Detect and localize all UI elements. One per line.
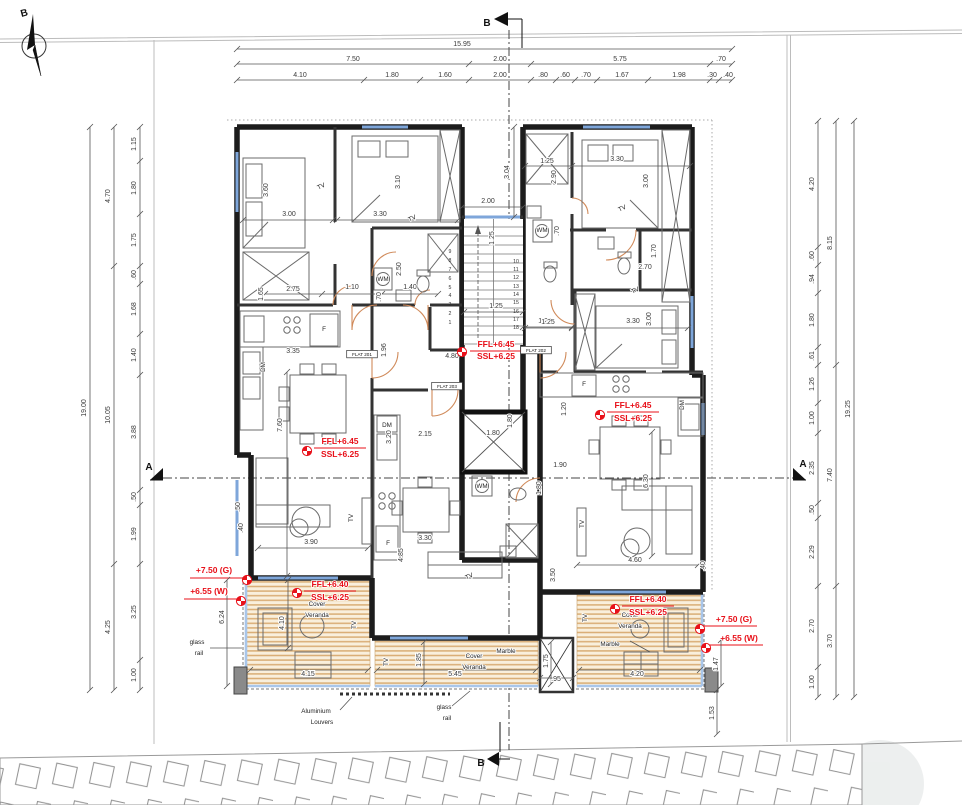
dimension-label: 1.98	[672, 72, 686, 79]
dimension-label: .70	[716, 56, 726, 63]
dimension-label: 2.29	[809, 545, 816, 559]
dimension-label: 5.45	[448, 671, 462, 678]
section-letter: B	[483, 18, 490, 29]
plan-label: Veranda	[305, 612, 329, 619]
dimension-label: 7.50	[346, 56, 360, 63]
level-annotation: FFL+6.45	[477, 339, 514, 349]
plan-label: TV	[464, 571, 475, 581]
dimension-label: 1.80	[486, 430, 500, 437]
dimension-label: 1.80	[809, 313, 816, 327]
dimension-label: 1.99	[131, 527, 138, 541]
dimension-line	[511, 124, 517, 220]
dimension-label: 1.65	[258, 287, 265, 301]
dimension-label: 2.00	[481, 198, 495, 205]
dimension-label: 1.47	[713, 657, 720, 671]
dimension-label: .61	[809, 351, 816, 361]
dimension-label: .60	[131, 270, 138, 280]
flat-label: FLAT 203	[437, 384, 457, 389]
dimension-label: 1.85	[416, 653, 423, 667]
dimension-label: 4.15	[301, 671, 315, 678]
level-marker	[695, 624, 704, 633]
plan-label: rail	[195, 650, 203, 657]
dimension-label: .60	[560, 72, 570, 79]
plan-label: glass	[437, 704, 452, 711]
plan-label: DM	[260, 362, 267, 372]
dimension-label: 1.25	[489, 231, 496, 245]
level-marker	[302, 446, 311, 455]
dimension-label: 3.30	[610, 156, 624, 163]
dimension-label: 1.40	[403, 284, 417, 291]
dimension-label: 5.75	[613, 56, 627, 63]
dimension-label: 3.70	[827, 634, 834, 648]
dimension-label: 1.80	[131, 181, 138, 195]
dimension-label: 1.40	[131, 348, 138, 362]
dimension-label: 4.85	[398, 548, 405, 562]
dimension-label: 3.00	[282, 211, 296, 218]
dimension-label: 1.60	[438, 72, 452, 79]
dimension-label: 1.90	[553, 462, 567, 469]
elevator	[462, 412, 525, 472]
plan-label: TV	[582, 613, 589, 622]
plan-label: Cover	[466, 653, 483, 660]
dimension-label: 4.60	[628, 557, 642, 564]
dimension-label: 4.80	[445, 353, 459, 360]
stair-number: 18	[513, 325, 519, 331]
stair-number: 4	[449, 293, 452, 299]
level-marker	[457, 347, 466, 356]
dimension-label: .30	[707, 72, 717, 79]
stair-number: 11	[513, 267, 518, 273]
dimension-label: .70	[554, 226, 561, 236]
plan-label: rail	[443, 715, 451, 722]
stair-number: 15	[513, 300, 519, 306]
dimension-label: 10.05	[105, 406, 112, 424]
stair-number: 16	[513, 309, 519, 315]
section-letter: B	[477, 758, 484, 769]
dimension-label: 2.70	[809, 619, 816, 633]
dimension-label: 1.25	[540, 158, 554, 165]
dimension-label: 3.88	[131, 425, 138, 439]
dimension-label: 1.68	[131, 302, 138, 316]
dimension-label: 2.75	[286, 286, 300, 293]
dimension-label: 2.00	[493, 56, 507, 63]
level-annotation: +7.50 (G)	[716, 614, 752, 624]
stair-number: 13	[513, 284, 519, 290]
level-marker	[595, 410, 604, 419]
dimension-label: 1.67	[615, 72, 629, 79]
flat-label: FLAT 202	[526, 348, 546, 353]
dimension-label: .95	[551, 676, 561, 683]
section-marker-b-top	[494, 12, 522, 48]
level-annotation: SSL+6.25	[614, 413, 652, 423]
floor-plan-sheet: 15.957.502.005.75.704.101.801.602.00.80.…	[0, 0, 962, 805]
stair-number: 14	[513, 292, 519, 298]
dimension-label: 1.75	[131, 233, 138, 247]
dimension-line	[234, 46, 735, 52]
dimension-label: 4.20	[630, 671, 644, 678]
plan-label: TV	[617, 203, 628, 213]
stair-number: 17	[513, 317, 519, 323]
section-marker-b-bottom	[487, 722, 510, 766]
dimension-label: 3.30	[418, 535, 432, 542]
plan-label: F	[322, 326, 326, 333]
dimension-label: 1.20	[561, 402, 568, 416]
stair-number: 9	[449, 249, 452, 255]
dimension-label: 3.04	[504, 165, 511, 179]
plan-label: Louvers	[311, 719, 333, 726]
dimension-label: 4.70	[105, 189, 112, 203]
section-letter: A	[799, 459, 806, 470]
dimension-label: 1.75	[543, 654, 550, 668]
dimension-label: 3.25	[131, 605, 138, 619]
dimension-label: .60	[809, 251, 816, 261]
dimension-label: 3.35	[286, 348, 300, 355]
dimension-label: 1.15	[131, 137, 138, 151]
dimension-label: 6.30	[643, 474, 650, 488]
stair-number: 2	[449, 311, 452, 317]
plan-label: Cover	[309, 601, 326, 608]
plan-label: Veranda	[462, 664, 486, 671]
dimension-label: 3.60	[263, 183, 270, 197]
level-annotation: FFL+6.40	[311, 579, 348, 589]
dimension-label: .70	[581, 72, 591, 79]
level-marker	[242, 575, 251, 584]
plan-label: glass	[190, 639, 205, 646]
dimension-label: 8.15	[827, 236, 834, 250]
level-annotation: +6.55 (W)	[720, 633, 758, 643]
dimension-line	[234, 61, 735, 67]
dimension-label: 2.00	[493, 72, 507, 79]
plan-label: Marble	[496, 648, 516, 655]
dimension-label: 1.00	[809, 675, 816, 689]
plan-label: WM	[377, 276, 388, 283]
dimension-label: 4.10	[293, 72, 307, 79]
level-annotation: +7.50 (G)	[196, 565, 232, 575]
dimension-label: 1.00	[809, 411, 816, 425]
dimension-label: 1.70	[651, 244, 658, 258]
dimension-label: 6.24	[219, 610, 226, 624]
stair-number: 3	[449, 302, 452, 308]
section-letter: B	[19, 7, 29, 19]
plan-label: WM	[476, 483, 487, 490]
dimension-label: 3.30	[373, 211, 387, 218]
level-marker	[701, 643, 710, 652]
dimension-label: 19.00	[81, 399, 88, 417]
plan-label: DM	[679, 400, 686, 410]
dimension-label: 4.25	[105, 620, 112, 634]
stair-number: 7	[449, 267, 452, 273]
dimension-label: 1.26	[809, 377, 816, 391]
dimension-label: 2.70	[638, 264, 652, 271]
stair-number: 6	[449, 276, 452, 282]
dimension-label: 3.30	[626, 318, 640, 325]
dimension-label: 7.60	[277, 418, 284, 432]
plan-label: WM	[536, 227, 547, 234]
dimension-label: 3.50	[550, 568, 557, 582]
dimension-label: 3.90	[304, 539, 318, 546]
level-annotation: +6.55 (W)	[190, 586, 228, 596]
dimension-label: 1.25	[541, 319, 555, 326]
level-annotation: SSL+6.25	[477, 351, 515, 361]
dimension-label: 3.20	[386, 430, 393, 444]
dimension-label: 2.15	[418, 431, 432, 438]
dimension-label: 1.25	[489, 303, 503, 310]
dimension-label: 19.25	[845, 400, 852, 418]
north-arrow	[22, 14, 46, 76]
level-annotation: FFL+6.40	[629, 594, 666, 604]
plan-label: Veranda	[618, 623, 642, 630]
plan-label: TV	[383, 657, 390, 666]
stair-number: 8	[449, 258, 452, 264]
dimension-label: 1.53	[709, 706, 716, 720]
plan-label: F	[386, 540, 390, 547]
plan-label: TV	[579, 519, 586, 528]
level-annotation: FFL+6.45	[614, 400, 651, 410]
level-marker	[292, 588, 301, 597]
dimension-line	[833, 118, 839, 700]
plan-label: TV	[348, 513, 355, 522]
dimension-label: 3.00	[643, 174, 650, 188]
level-annotation: SSL+6.25	[311, 592, 349, 602]
stair-number: 1	[449, 320, 452, 326]
stair-number: 5	[449, 285, 452, 291]
dimension-label: 2.50	[396, 262, 403, 276]
plan-label: TV	[316, 181, 327, 191]
stair-number: 12	[513, 275, 519, 281]
stair-number: 10	[513, 259, 519, 265]
level-annotation: FFL+6.45	[321, 436, 358, 446]
plan-label: TV	[351, 620, 358, 629]
level-annotation: SSL+6.25	[321, 449, 359, 459]
dimension-label: 7.40	[827, 468, 834, 482]
dimension-label: .50	[131, 492, 138, 502]
dimension-line	[234, 77, 735, 83]
plan-label: Aluminium	[301, 708, 330, 715]
road-hatch-band	[0, 741, 962, 805]
dimension-label: 2.35	[809, 461, 816, 475]
dimension-label: .40	[723, 72, 733, 79]
plan-label: DM	[382, 422, 392, 429]
dimension-label: 1.80	[536, 481, 543, 495]
dimension-label: 1.96	[381, 343, 388, 357]
dimension-label: 1.80	[507, 414, 514, 428]
plan-label: F	[582, 381, 586, 388]
dimension-label: .40	[700, 561, 707, 571]
dimension-label: .50	[235, 502, 242, 512]
floor-plan-canvas: 15.957.502.005.75.704.101.801.602.00.80.…	[0, 0, 962, 805]
dimension-label: .94	[809, 274, 816, 284]
level-marker	[610, 604, 619, 613]
dimension-label: .80	[538, 72, 548, 79]
dimension-label: 2.90	[551, 170, 558, 184]
dimension-label: 1.00	[131, 668, 138, 682]
level-marker	[236, 596, 245, 605]
dimension-label: .40	[238, 523, 245, 533]
dimension-line	[815, 118, 821, 700]
flat-label: FLAT 201	[352, 352, 372, 357]
dimension-label: 4.10	[279, 616, 286, 630]
dimension-label: 1.10	[345, 284, 359, 291]
dimension-label: 15.95	[453, 41, 471, 48]
dimension-label: 3.00	[646, 312, 653, 326]
dimension-label: 3.10	[395, 175, 402, 189]
level-annotation: SSL+6.25	[629, 607, 667, 617]
section-letter: A	[145, 462, 152, 473]
plan-label: Marble	[600, 641, 620, 648]
dimension-label: .70	[376, 292, 383, 302]
dimension-label: 4.20	[809, 177, 816, 191]
dimension-label: 1.80	[385, 72, 399, 79]
dimension-label: .50	[809, 505, 816, 515]
